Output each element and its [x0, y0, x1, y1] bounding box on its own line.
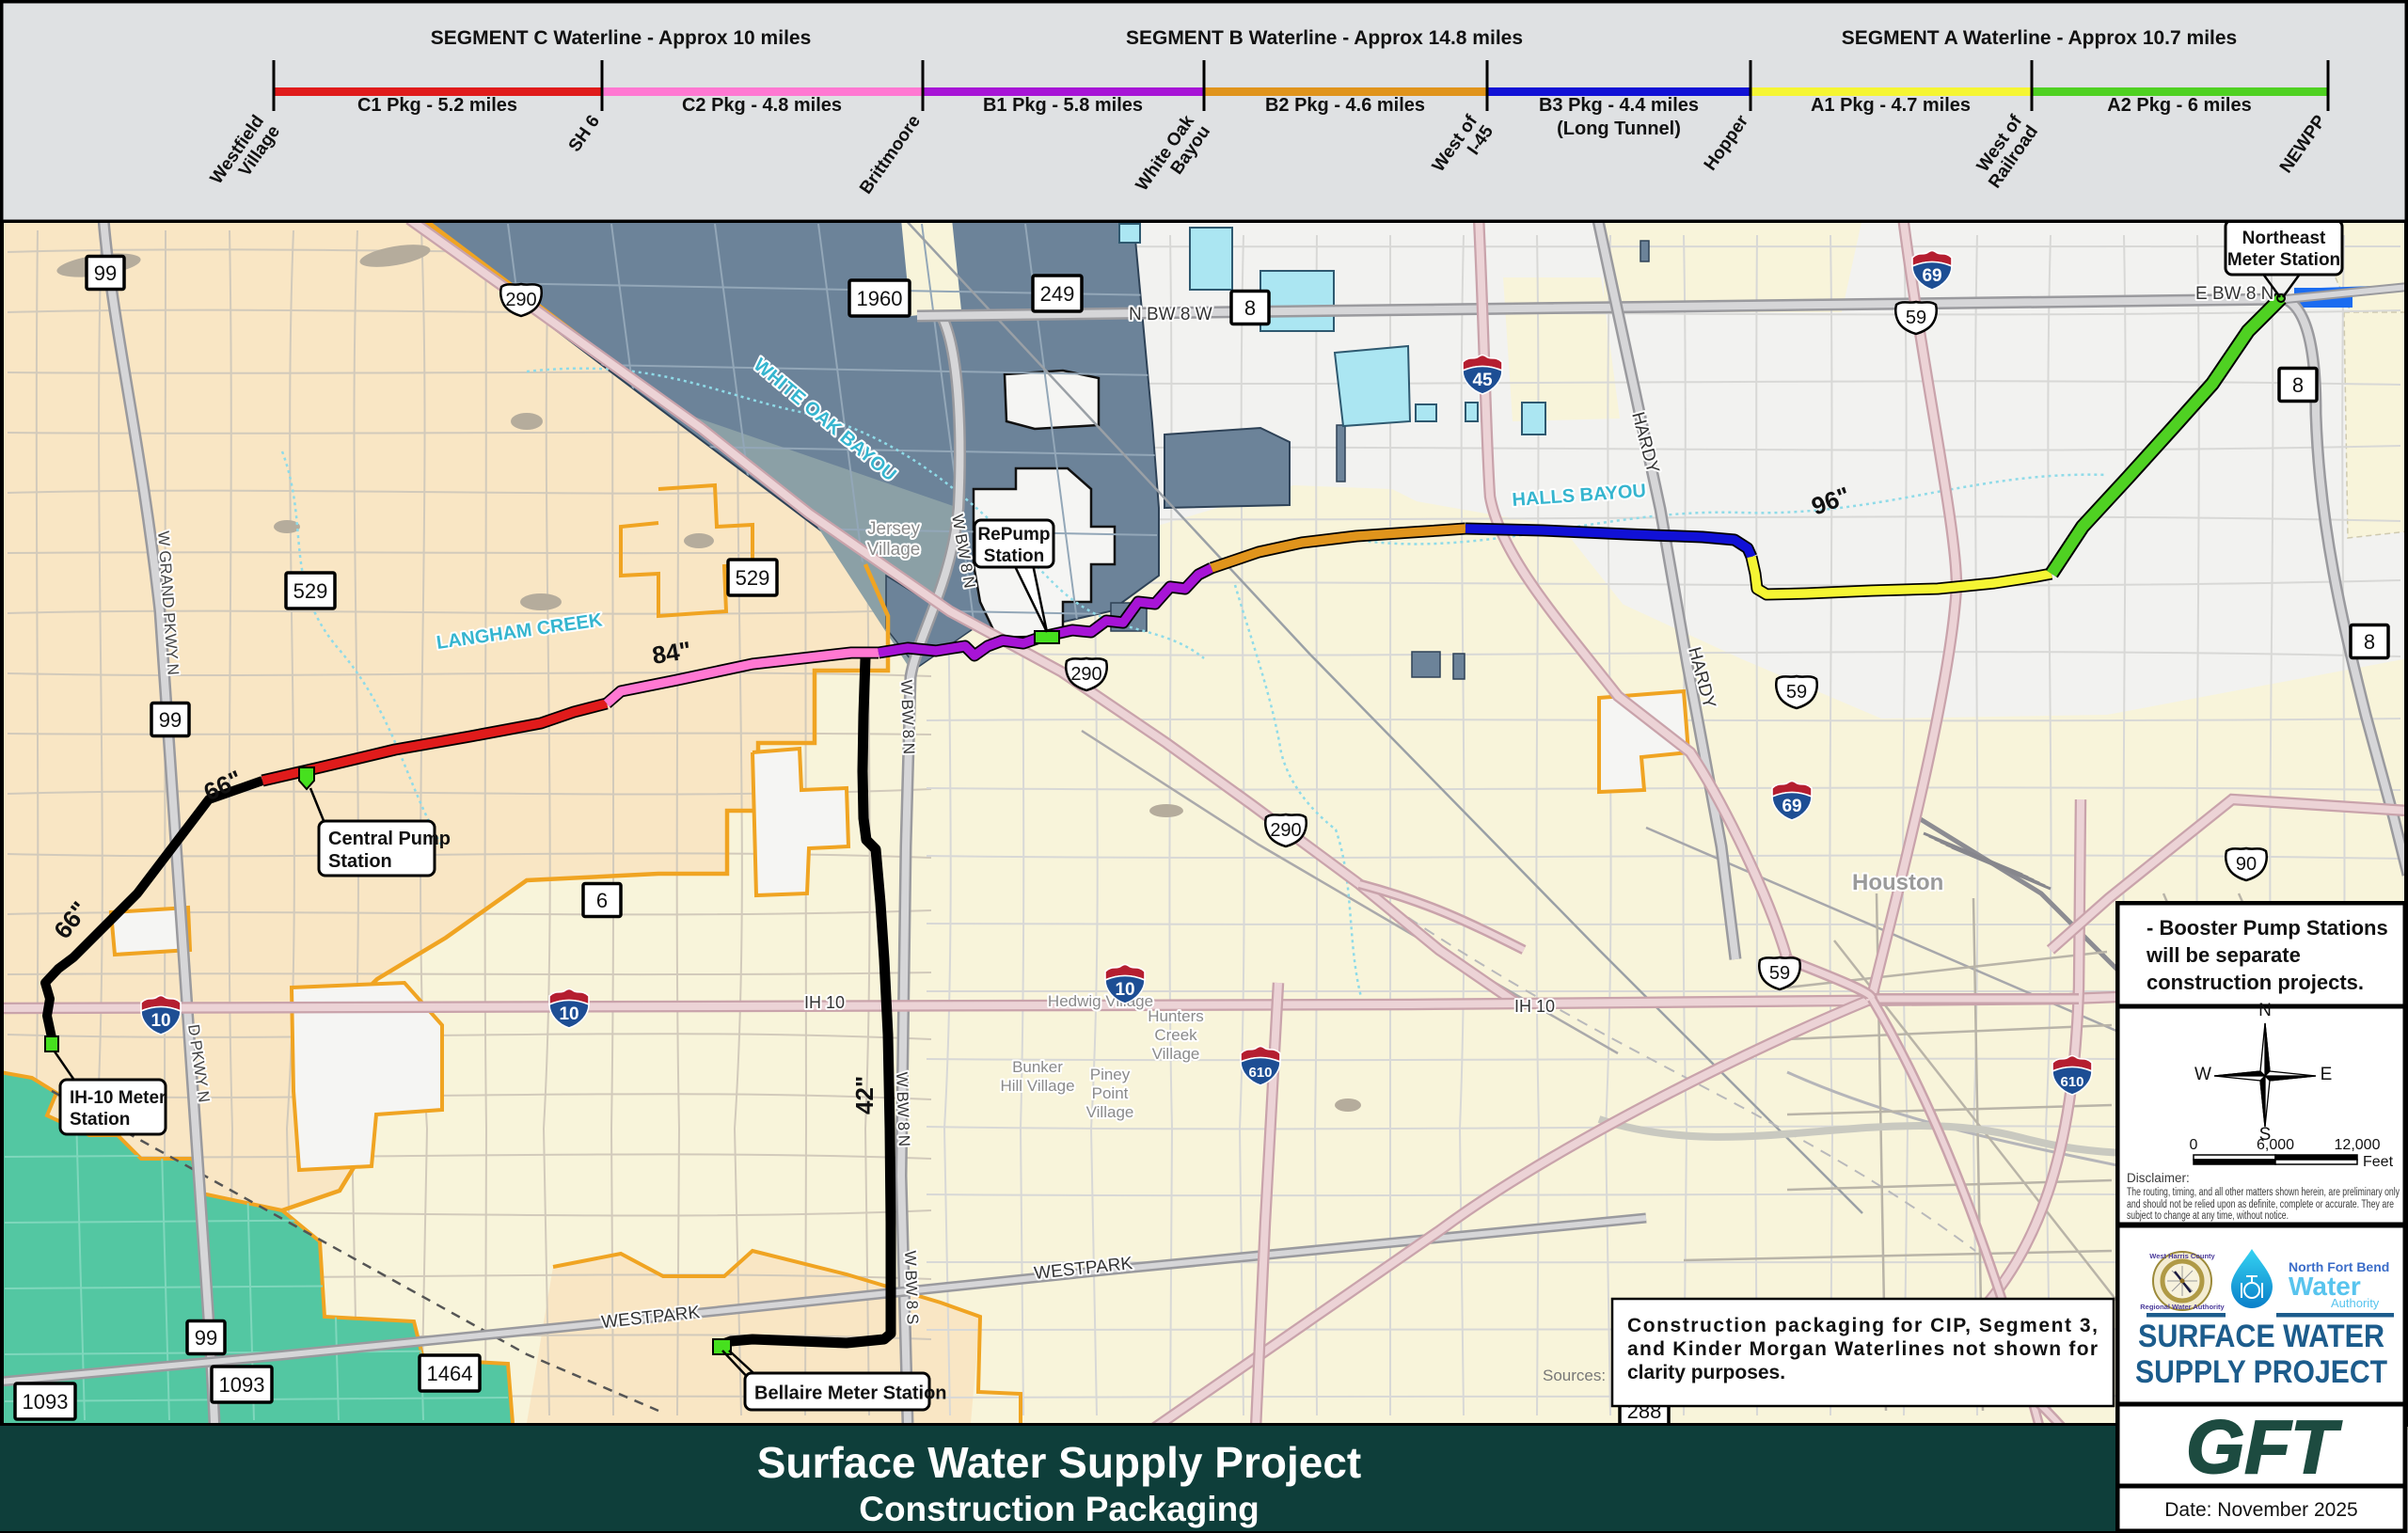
- svg-text:E BW 8 N: E BW 8 N: [2195, 284, 2273, 304]
- svg-text:Station: Station: [328, 851, 392, 872]
- svg-text:SURFACE WATER: SURFACE WATER: [2138, 1319, 2384, 1354]
- svg-text:1960: 1960: [857, 287, 903, 310]
- svg-text:Piney: Piney: [1090, 1066, 1131, 1083]
- svg-text:W BW 8 S: W BW 8 S: [901, 1250, 922, 1324]
- svg-text:8: 8: [2292, 373, 2304, 397]
- svg-text:45: 45: [1472, 371, 1493, 390]
- svg-text:1464: 1464: [427, 1362, 473, 1385]
- svg-text:Houston: Houston: [1852, 870, 1943, 895]
- svg-text:Meter Station: Meter Station: [2227, 250, 2340, 270]
- svg-text:B3 Pkg - 4.4 miles: B3 Pkg - 4.4 miles: [1539, 95, 1699, 116]
- svg-text:SEGMENT C Waterline - Approx 1: SEGMENT C Waterline - Approx 10 miles: [431, 27, 812, 49]
- svg-text:C1 Pkg - 5.2 miles: C1 Pkg - 5.2 miles: [357, 95, 517, 116]
- svg-text:Construction packaging for CIP: Construction packaging for CIP, Segment …: [1627, 1315, 2098, 1336]
- svg-text:- Booster Pump Stations: - Booster Pump Stations: [2147, 916, 2388, 940]
- svg-text:Disclaimer:: Disclaimer:: [2127, 1171, 2190, 1185]
- svg-text:W BW 8 N: W BW 8 N: [897, 679, 918, 754]
- svg-text:and Kinder Morgan Waterlines n: and Kinder Morgan Waterlines not shown f…: [1627, 1338, 2098, 1360]
- svg-text:290: 290: [1070, 664, 1101, 685]
- svg-text:10: 10: [559, 1004, 578, 1024]
- svg-text:IH-10 Meter: IH-10 Meter: [70, 1088, 166, 1108]
- svg-text:Hunters: Hunters: [1148, 1007, 1204, 1025]
- svg-text:SUPPLY PROJECT: SUPPLY PROJECT: [2135, 1354, 2387, 1390]
- svg-text:290: 290: [1270, 820, 1301, 841]
- svg-text:IH 10: IH 10: [804, 993, 845, 1012]
- svg-text:59: 59: [1786, 682, 1807, 703]
- svg-text:99: 99: [94, 261, 117, 285]
- svg-text:10: 10: [150, 1011, 170, 1031]
- svg-text:84": 84": [650, 636, 692, 670]
- svg-text:249: 249: [1040, 282, 1075, 306]
- svg-text:subject to change at any time,: subject to change at any time, without n…: [2127, 1210, 2289, 1222]
- svg-text:and should not be relied upon: and should not be relied upon as definit…: [2127, 1199, 2394, 1210]
- svg-text:290: 290: [505, 290, 536, 310]
- svg-text:Feet: Feet: [2363, 1154, 2394, 1170]
- svg-text:Jersey: Jersey: [867, 519, 920, 539]
- svg-text:90: 90: [2236, 854, 2257, 875]
- svg-text:E: E: [2321, 1065, 2333, 1084]
- svg-text:59: 59: [1906, 308, 1926, 328]
- svg-text:610: 610: [2060, 1074, 2083, 1090]
- svg-text:69: 69: [1922, 266, 1941, 286]
- svg-text:N: N: [2258, 1001, 2272, 1020]
- svg-text:IH 10: IH 10: [1514, 997, 1555, 1016]
- svg-text:Village: Village: [867, 540, 921, 560]
- svg-text:1093: 1093: [219, 1373, 265, 1397]
- svg-text:Creek: Creek: [1154, 1026, 1197, 1044]
- svg-text:610: 610: [1248, 1065, 1272, 1081]
- svg-text:Regional Water Authority: Regional Water Authority: [2140, 1303, 2225, 1311]
- svg-text:A1 Pkg - 4.7 miles: A1 Pkg - 4.7 miles: [1811, 95, 1971, 116]
- svg-text:Bunker: Bunker: [1012, 1058, 1063, 1076]
- svg-text:clarity purposes.: clarity purposes.: [1627, 1362, 1785, 1383]
- svg-text:Station: Station: [70, 1110, 130, 1130]
- svg-text:construction projects.: construction projects.: [2147, 971, 2364, 994]
- svg-text:SEGMENT B Waterline - Approx 1: SEGMENT B Waterline - Approx 14.8 miles: [1126, 27, 1523, 49]
- svg-text:Point: Point: [1092, 1084, 1129, 1102]
- svg-text:(Long Tunnel): (Long Tunnel): [1557, 119, 1681, 139]
- svg-text:99: 99: [159, 708, 182, 732]
- svg-text:69: 69: [1782, 797, 1801, 816]
- svg-text:6: 6: [596, 889, 608, 912]
- svg-text:529: 529: [293, 579, 328, 603]
- svg-text:Station: Station: [984, 546, 1044, 566]
- svg-text:Village: Village: [1152, 1045, 1200, 1063]
- svg-text:1093: 1093: [23, 1390, 69, 1414]
- svg-text:RePump: RePump: [977, 525, 1050, 545]
- svg-text:59: 59: [1769, 963, 1790, 984]
- svg-text:A2 Pkg - 6 miles: A2 Pkg - 6 miles: [2107, 95, 2251, 116]
- svg-text:N BW 8 W: N BW 8 W: [1129, 305, 1212, 324]
- svg-text:Authority: Authority: [2331, 1296, 2380, 1310]
- svg-text:SEGMENT A Waterline - Approx 1: SEGMENT A Waterline - Approx 10.7 miles: [1842, 27, 2237, 49]
- svg-text:10: 10: [1115, 980, 1134, 1000]
- svg-text:6,000: 6,000: [2257, 1137, 2294, 1153]
- svg-text:Sources: E: Sources: E: [1543, 1367, 1621, 1384]
- svg-text:W: W: [2194, 1065, 2211, 1084]
- svg-text:12,000: 12,000: [2335, 1137, 2381, 1153]
- svg-text:West Harris County: West Harris County: [2149, 1252, 2215, 1260]
- svg-text:B1 Pkg - 5.8 miles: B1 Pkg - 5.8 miles: [983, 95, 1143, 116]
- svg-text:0: 0: [2190, 1137, 2198, 1153]
- svg-text:Hill Village: Hill Village: [1000, 1077, 1074, 1095]
- svg-text:Bellaire Meter Station: Bellaire Meter Station: [754, 1383, 947, 1404]
- svg-text:B2 Pkg - 4.6 miles: B2 Pkg - 4.6 miles: [1265, 95, 1425, 116]
- svg-text:42": 42": [850, 1076, 879, 1114]
- svg-text:8: 8: [1244, 296, 1256, 320]
- svg-text:The routing, timing, and all o: The routing, timing, and all other matte…: [2127, 1187, 2400, 1198]
- svg-text:99: 99: [195, 1326, 217, 1350]
- svg-text:8: 8: [2364, 630, 2375, 654]
- svg-text:W BW 8 N: W BW 8 N: [893, 1071, 913, 1146]
- svg-text:Date: November 2025: Date: November 2025: [2164, 1499, 2357, 1521]
- svg-text:Northeast: Northeast: [2242, 229, 2326, 248]
- svg-text:C2 Pkg - 4.8 miles: C2 Pkg - 4.8 miles: [682, 95, 842, 116]
- svg-text:will be separate: will be separate: [2146, 943, 2301, 967]
- svg-text:529: 529: [736, 566, 770, 590]
- svg-text:Central Pump: Central Pump: [328, 829, 451, 849]
- svg-text:GFT: GFT: [2186, 1405, 2342, 1489]
- svg-text:Village: Village: [1086, 1103, 1134, 1121]
